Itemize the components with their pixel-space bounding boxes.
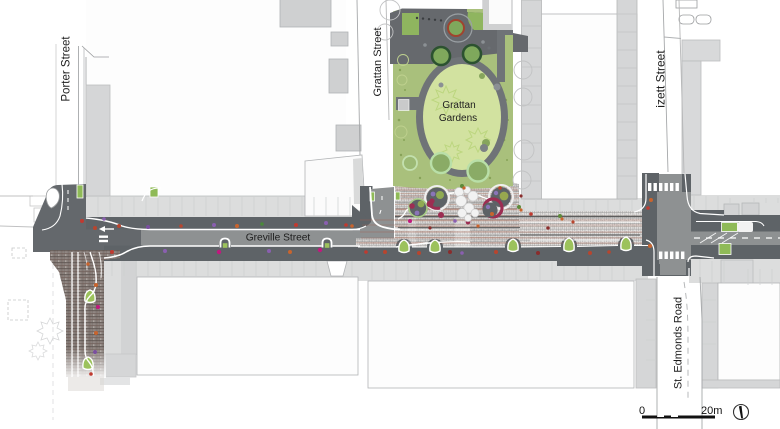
- svg-text:St. Edmonds Road: St. Edmonds Road: [673, 297, 685, 389]
- svg-text:Grattan: Grattan: [442, 100, 475, 111]
- svg-text:20m: 20m: [701, 405, 722, 417]
- svg-text:izett Street: izett Street: [654, 50, 668, 108]
- svg-text:0: 0: [639, 405, 645, 417]
- svg-text:Porter Street: Porter Street: [61, 36, 73, 102]
- svg-text:Greville Street: Greville Street: [246, 233, 311, 244]
- svg-text:Gardens: Gardens: [439, 113, 477, 124]
- svg-text:Grattan Street: Grattan Street: [372, 27, 384, 96]
